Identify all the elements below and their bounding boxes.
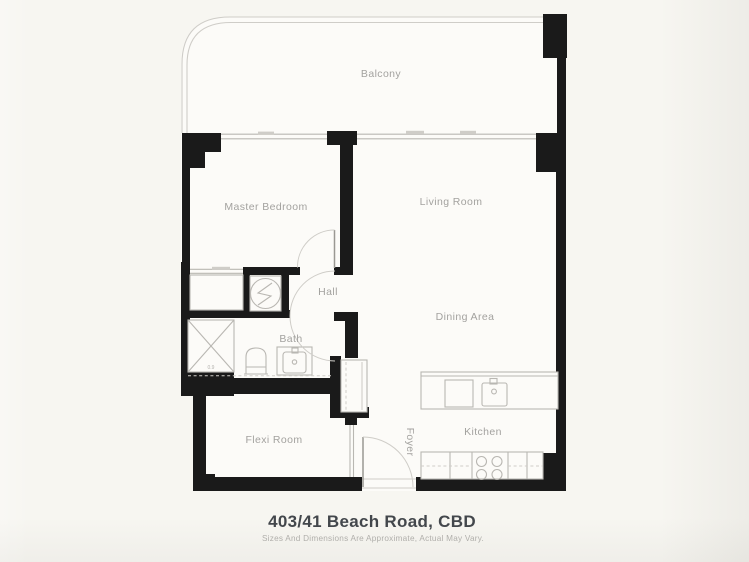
plan-disclaimer: Sizes And Dimensions Are Approximate, Ac… <box>262 534 484 543</box>
toilet-fixture <box>244 348 268 374</box>
floor-plan: 0.9 <box>0 0 749 562</box>
dining-area-label: Dining Area <box>436 311 495 323</box>
wall-segment <box>345 412 357 425</box>
washer-dryer-fixture <box>250 276 281 311</box>
flexi-room-label: Flexi Room <box>245 434 302 446</box>
wall-segment <box>243 270 250 312</box>
shower-size-label: 0.9 <box>208 365 215 371</box>
wardrobe-fixture <box>341 360 367 412</box>
wall-segment <box>206 477 362 491</box>
wall-segment <box>243 267 300 275</box>
foyer-label: Foyer <box>404 428 416 457</box>
island-bench-fixture <box>421 372 558 409</box>
floor-slab <box>181 17 566 491</box>
wall-segment <box>234 378 333 394</box>
living-room-label: Living Room <box>420 196 483 208</box>
floor-plan-page: 0.9 <box>0 0 749 562</box>
kitchen-counter <box>421 452 543 480</box>
wall-segment <box>193 392 206 480</box>
kitchen-label: Kitchen <box>464 426 502 438</box>
wall-segment <box>334 267 353 275</box>
wall-segment <box>556 133 566 487</box>
shower-fixture: 0.9 <box>188 320 234 372</box>
plan-title: 403/41 Beach Road, CBD <box>268 512 476 531</box>
wall-segment <box>182 150 205 168</box>
hall-label: Hall <box>318 286 338 298</box>
wall-segment <box>182 133 221 152</box>
balcony-label: Balcony <box>361 68 402 80</box>
wall-segment <box>557 44 566 133</box>
wall-segment <box>182 166 190 270</box>
bath-label: Bath <box>279 333 302 345</box>
wall-segment <box>340 131 353 275</box>
wall-segment <box>345 312 358 358</box>
master-bedroom-label: Master Bedroom <box>224 201 307 213</box>
